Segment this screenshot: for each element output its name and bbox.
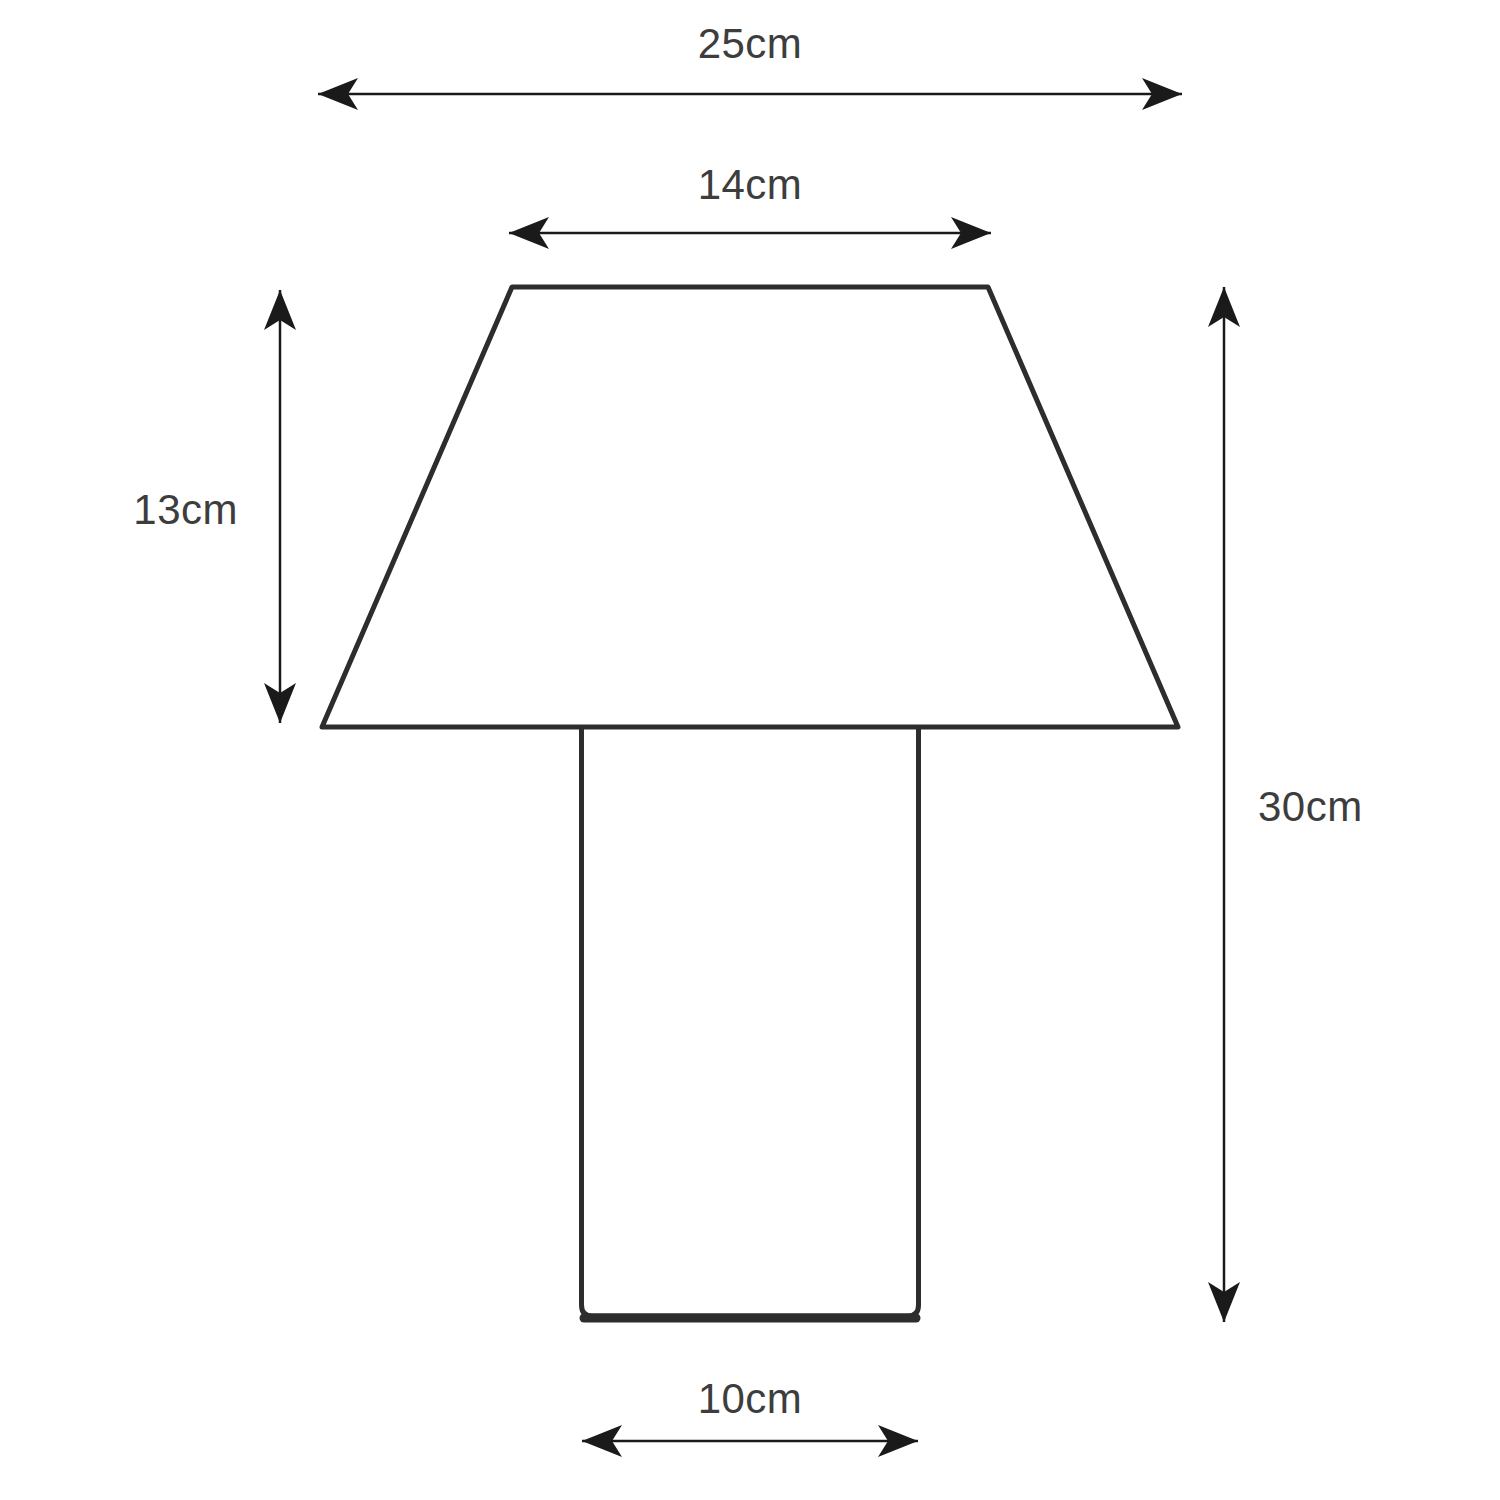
base-width-label: 10cm <box>698 1375 803 1423</box>
lamp-base <box>582 727 919 1318</box>
shade-height-label: 13cm <box>133 486 238 534</box>
overall-height-label: 30cm <box>1258 783 1363 831</box>
lamp-base-outline <box>582 727 919 1316</box>
shade-top-width-label: 14cm <box>698 161 803 209</box>
lamp-shade-outline <box>322 287 1178 727</box>
lamp-dimension-drawing <box>0 0 1500 1500</box>
diagram-canvas: 25cm 14cm 13cm 30cm 10cm <box>0 0 1500 1500</box>
overall-width-label: 25cm <box>698 20 803 68</box>
lamp-shade <box>322 287 1178 727</box>
